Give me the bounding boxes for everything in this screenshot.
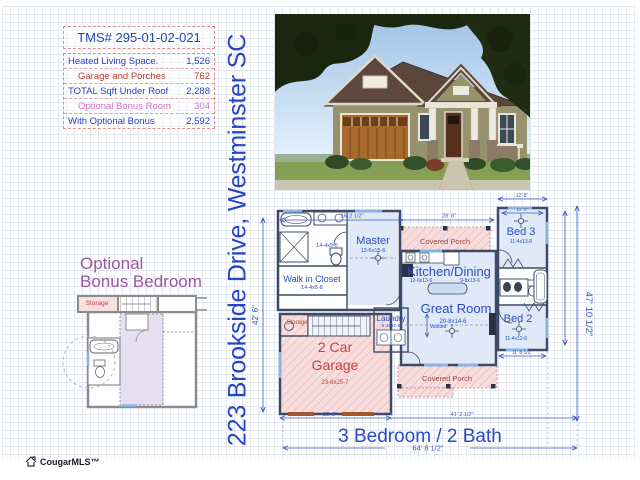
dim-wing-top: 12' 8" [516, 193, 529, 199]
master-dims: 13-6x15-6 [361, 248, 386, 254]
laundry-label: Laundry [377, 314, 406, 323]
dim-top-left: 26' 2 1/2" [341, 214, 364, 220]
table-row: Heated Living Space. 1,526 [64, 54, 214, 69]
bed-bath-summary: 3 Bedroom / 2 Bath [338, 426, 502, 447]
storage-label: Storage [286, 320, 308, 326]
garage-door [341, 114, 409, 160]
table-row: Garage and Porches 762 [64, 69, 214, 84]
bed3-label: Bed 3 [507, 226, 536, 238]
bed3-dims: 11-4x13-8 [510, 239, 532, 245]
master-bath-dims: 14-4x9-6 [316, 243, 338, 249]
master-label: Master [356, 235, 390, 247]
house-photo [275, 14, 530, 190]
foreground-path [275, 180, 530, 190]
laundry-dims: 5-10x7-8 [382, 323, 401, 329]
bonus-storage-label: Storage [86, 300, 109, 307]
master-bedroom-area [347, 212, 398, 305]
table-row: TOTAL Sqft Under Roof 2,288 [64, 84, 214, 99]
row-label: TOTAL Sqft Under Roof [68, 86, 168, 97]
row-label: Optional Bonus Room [68, 101, 171, 112]
info-table: TMS# 295-01-02-021 Heated Living Space. … [63, 26, 215, 129]
garage-dims: 23-6x25-7 [321, 380, 349, 386]
garage-label-line2: Garage [312, 357, 359, 373]
dim-left-height: 42' 6" [251, 305, 260, 325]
floor-plan: Master 13-6x15-6 14-4x9-6 Walk in Closet… [232, 192, 604, 464]
dim-wing-inner: 11' 4" [517, 207, 528, 212]
great-room-label: Great Room [421, 301, 492, 316]
row-label: Garage and Porches [68, 71, 166, 82]
kitchen-label: Kitchen/Dining [407, 264, 491, 279]
mls-logo-text: CougarMLS™ [40, 457, 100, 467]
row-label: With Optional Bonus [68, 116, 155, 127]
kitchen-dims-b: 9-8x13-6 [460, 278, 480, 284]
table-row: With Optional Bonus 2,592 [64, 114, 214, 128]
mls-logo: CougarMLS™ [24, 455, 100, 468]
bonus-title-line1: Optional [80, 254, 143, 274]
row-label: Heated Living Space. [68, 56, 158, 67]
kitchen-dims-a: 12-0x13-6 [410, 278, 433, 284]
row-value: 762 [194, 71, 210, 82]
row-value: 304 [194, 101, 210, 112]
row-value: 2,288 [186, 86, 210, 97]
bed2-dims: 11-4x12-6 [505, 336, 527, 342]
bonus-bedroom-plan: Storage [60, 290, 215, 415]
bonus-closet [126, 314, 148, 330]
covered-porch-bottom-label: Covered Porch [422, 374, 472, 383]
bonus-bath [88, 338, 120, 385]
sqft-table: Heated Living Space. 1,526 Garage and Po… [63, 53, 215, 129]
row-value: 1,526 [186, 56, 210, 67]
front-door [445, 112, 462, 158]
bed2-label: Bed 2 [504, 313, 533, 325]
garage-label-line1: 2 Car [318, 339, 353, 355]
dim-bottom-main: 41' 2 1/2" [451, 412, 474, 418]
walk-in-closet-label: Walk in Closet [283, 274, 341, 284]
dim-right-height: 47' 10 1/2" [583, 292, 594, 337]
bonus-title-line2: Bonus Bedroom [80, 272, 202, 292]
fireplace [489, 313, 496, 335]
dim-bottom-garage: 23' 6" [323, 412, 337, 418]
covered-porch-top-label: Covered Porch [420, 237, 470, 246]
stairs [308, 316, 370, 336]
dim-top-right: 28' 8" [442, 214, 456, 220]
vaulted-note: Vaulted [430, 324, 447, 330]
laundry-fixtures [377, 330, 405, 345]
table-row: Optional Bonus Room 304 [64, 99, 214, 114]
walk-in-closet-dims: 14-4x5-8 [301, 285, 323, 291]
row-value: 2,592 [186, 116, 210, 127]
tms-number: TMS# 295-01-02-021 [63, 26, 215, 49]
dim-bed2-width: 11' 8 1/2" [512, 350, 533, 356]
house-logo-icon [24, 455, 38, 468]
kitchen-island [428, 283, 467, 294]
